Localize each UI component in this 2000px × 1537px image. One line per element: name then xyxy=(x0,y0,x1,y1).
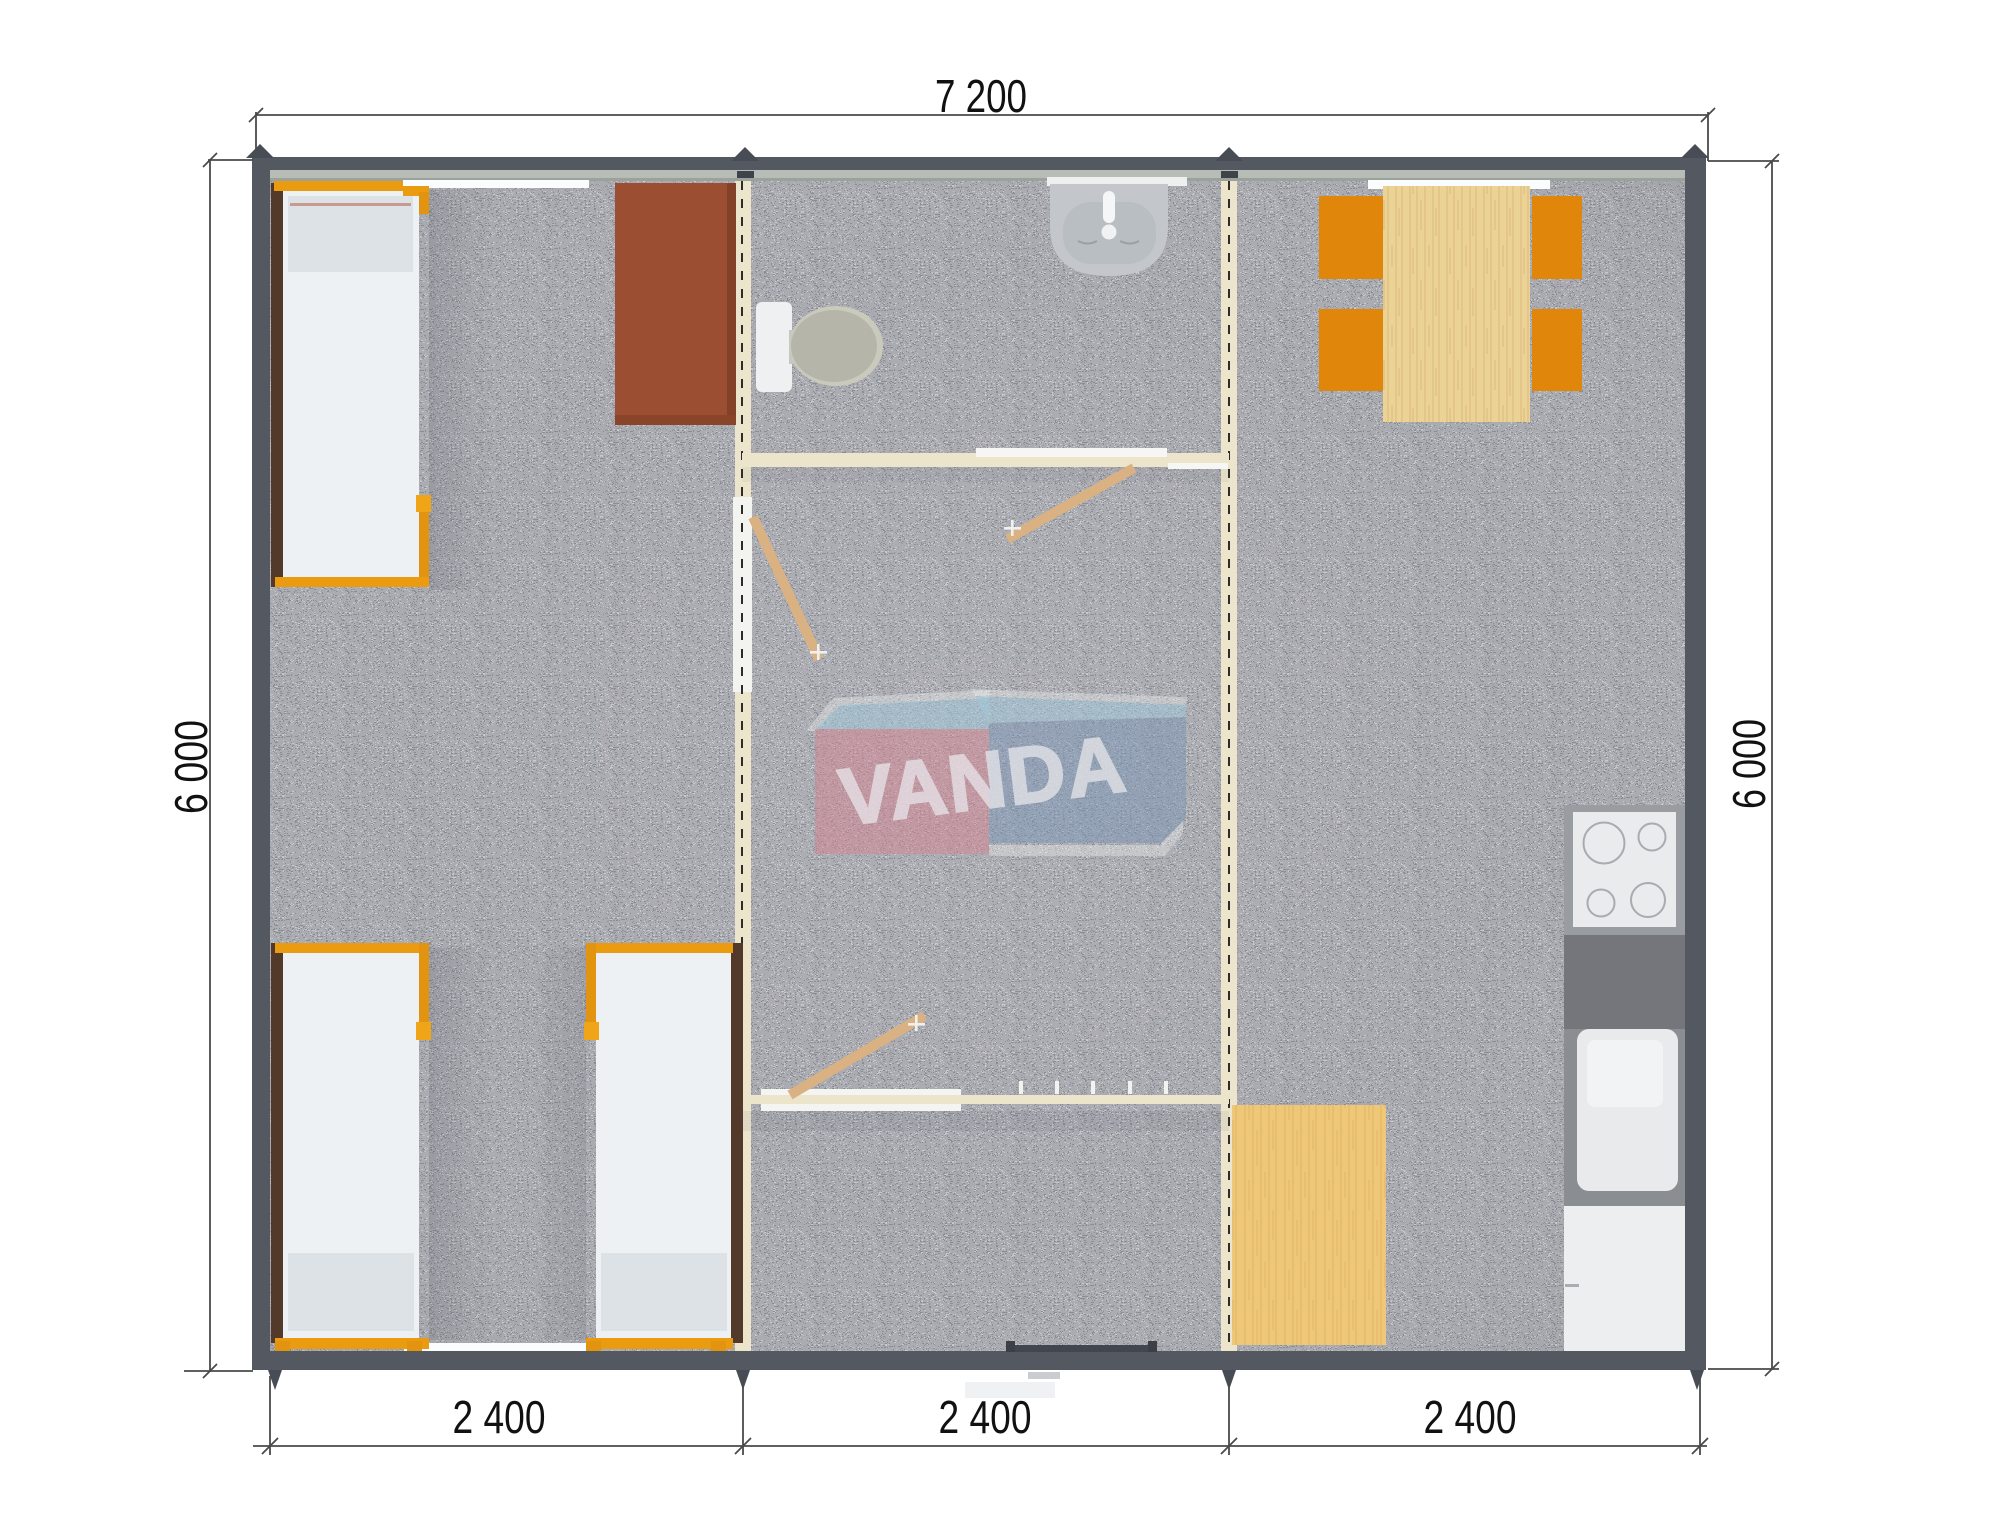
svg-text:2 400: 2 400 xyxy=(939,1391,1032,1443)
svg-text:2 400: 2 400 xyxy=(1424,1391,1517,1443)
svg-text:7 200: 7 200 xyxy=(935,70,1027,122)
svg-text:6 000: 6 000 xyxy=(1723,719,1775,809)
svg-text:2 400: 2 400 xyxy=(453,1391,546,1443)
svg-text:6 000: 6 000 xyxy=(165,720,217,814)
